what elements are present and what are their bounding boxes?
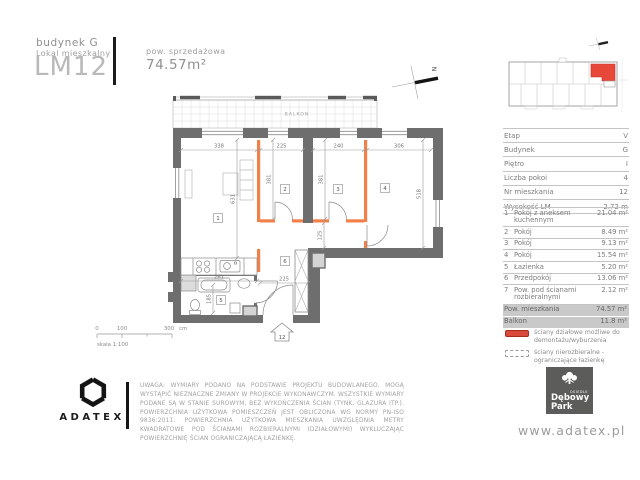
room-name: Pow. pod ścianami rozbieralnymi	[514, 287, 595, 302]
scale-tick-0: 0	[95, 326, 99, 332]
info-label: Etap	[504, 132, 520, 140]
room-number: 5	[504, 264, 514, 271]
info-value: I	[626, 160, 628, 168]
table-row: 5Łazienka5.20 m²	[503, 261, 629, 273]
legend-label: ściany działowe możliwe do demontażu/wyb…	[534, 329, 629, 345]
total-label: Pow. mieszkania	[504, 306, 594, 313]
info-value: 4	[624, 174, 628, 182]
info-value: V	[623, 132, 628, 140]
balcony: BALKON	[173, 96, 377, 128]
scale-tick-300: 300	[164, 326, 175, 332]
north-label: N	[430, 67, 437, 72]
building-outline	[509, 58, 628, 112]
shower-block	[181, 275, 196, 291]
unit-info-table: EtapV BudynekG PiętroI Liczba pokoi4 Nr …	[503, 128, 629, 214]
room-area: 21.04 m²	[595, 210, 628, 225]
info-value: 12	[619, 188, 628, 196]
dim-label: 518	[417, 189, 423, 199]
room-name: Pokój z aneksem kuchennym	[514, 210, 595, 225]
estate-name-line2: Park	[551, 403, 588, 412]
washbasin-icon	[238, 279, 250, 289]
adatex-logo-icon	[74, 374, 112, 410]
room-name: Pokój	[514, 252, 595, 259]
room-area: 9.13 m²	[595, 240, 628, 247]
table-row: EtapV	[503, 128, 629, 142]
footer-divider	[126, 382, 129, 429]
table-row: PiętroI	[503, 156, 629, 170]
dim-label: 306	[394, 144, 404, 150]
total-area: 11.8 m²	[594, 318, 627, 325]
table	[223, 173, 238, 195]
dim-label: 631	[231, 194, 237, 204]
balcony-label: BALKON	[285, 112, 310, 118]
room-number: 1	[504, 210, 514, 225]
tree-icon	[551, 370, 588, 385]
info-label: Piętro	[504, 160, 524, 168]
scale-unit: cm	[179, 326, 187, 332]
room-4-label: 4	[383, 186, 387, 192]
room-6-label: 6	[283, 259, 287, 265]
installation-shaft	[295, 250, 308, 312]
legend-item-demolishable: ściany działowe możliwe do demontażu/wyb…	[505, 329, 629, 345]
mini-north-icon	[589, 38, 608, 50]
website-link[interactable]: www.adatex.pl	[518, 423, 626, 438]
room-name: Pokój	[514, 240, 595, 247]
info-label: Nr mieszkania	[504, 188, 554, 196]
table-row: Liczba pokoi4	[503, 171, 629, 185]
room-name: Łazienka	[514, 264, 595, 271]
total-row-apartment: Pow. mieszkania74.57 m²	[503, 304, 629, 316]
table-row: BudynekG	[503, 142, 629, 156]
room-area: 2.12 m²	[595, 287, 628, 302]
wardrobe	[185, 170, 192, 198]
dim-label: 381	[319, 175, 325, 185]
dim-label: 381	[267, 175, 273, 185]
info-label: Budynek	[504, 146, 535, 154]
dim-label: 185	[207, 294, 213, 304]
entrance-number: 12	[279, 335, 286, 341]
scale-tick-100: 100	[117, 326, 128, 332]
debowy-park-logo: OSIEDLE Dębowy Park	[546, 367, 593, 414]
washer-icon	[230, 303, 240, 313]
room-name: Przedpokój	[514, 275, 595, 282]
table-row: 6Przedpokój13.06 m²	[503, 273, 629, 285]
table-row: 2Pokój8.49 m²	[503, 226, 629, 238]
dim-label: 125	[318, 231, 324, 241]
disclaimer-text: UWAGA: WYMIARY PODANO NA PODSTAWIE PROJE…	[140, 382, 404, 444]
room-number: 3	[504, 240, 514, 247]
room-name: Pokój	[514, 229, 595, 236]
dim-label: 338	[214, 144, 224, 150]
dashed-wall-swatch	[505, 350, 529, 357]
room-area: 8.49 m²	[595, 229, 628, 236]
floor-plan-drawing: N BALKON	[30, 55, 490, 370]
legend-label: ściany nierozbieralne - ograniczające ła…	[534, 349, 629, 365]
building-label: budynek G	[36, 37, 98, 49]
sofa	[240, 160, 253, 200]
room-number: 7	[504, 287, 514, 302]
scale-bar: 0 100 300 cm skala 1:100	[95, 326, 187, 348]
toilet-icon	[190, 300, 201, 315]
table-row: 4Pokój15.54 m²	[503, 249, 629, 261]
room-number: 4	[504, 252, 514, 259]
legend-item-fixed: ściany nierozbieralne - ograniczające ła…	[505, 349, 629, 365]
dim-label: 225	[277, 144, 287, 150]
total-area: 74.57 m²	[594, 306, 627, 313]
furniture	[185, 160, 253, 200]
wall-legend: ściany działowe możliwe do demontażu/wyb…	[505, 329, 629, 369]
table-row: 7Pow. pod ścianami rozbieralnymi2.12 m²	[503, 284, 629, 303]
scale-label: skala 1:100	[97, 342, 129, 348]
room-area: 15.54 m²	[595, 252, 628, 259]
floorplan-sheet: budynek G Lokal mieszkalny LM12 pow. spr…	[0, 0, 640, 480]
north-arrow-icon: N	[392, 66, 438, 99]
room-areas-table: 1Pokój z aneksem kuchennym21.04 m² 2Pokó…	[503, 207, 629, 328]
table-row: Nr mieszkania12	[503, 185, 629, 199]
dim-label: 225	[279, 277, 289, 283]
room-5-label: 5	[219, 298, 223, 304]
total-row-balcony: Balkon11.8 m²	[503, 316, 629, 328]
room-area: 5.20 m²	[595, 264, 628, 271]
table-row: 3Pokój9.13 m²	[503, 238, 629, 250]
total-label: Balkon	[504, 318, 594, 325]
dim-label: 261	[214, 275, 224, 281]
room-1-label: 1	[216, 216, 220, 222]
kitchen-counter	[181, 258, 257, 275]
table-row: 1Pokój z aneksem kuchennym21.04 m²	[503, 207, 629, 226]
info-label: Liczba pokoi	[504, 174, 547, 182]
building-locator-map	[505, 33, 630, 115]
room-3-label: 3	[336, 187, 340, 193]
room-2-label: 2	[283, 187, 287, 193]
info-value: G	[623, 146, 628, 154]
red-wall-swatch	[505, 330, 529, 337]
room-number: 2	[504, 229, 514, 236]
room-number: 6	[504, 275, 514, 282]
dim-label: 240	[334, 144, 344, 150]
room-area: 13.06 m²	[595, 275, 628, 282]
entrance-marker: 12	[271, 323, 293, 341]
